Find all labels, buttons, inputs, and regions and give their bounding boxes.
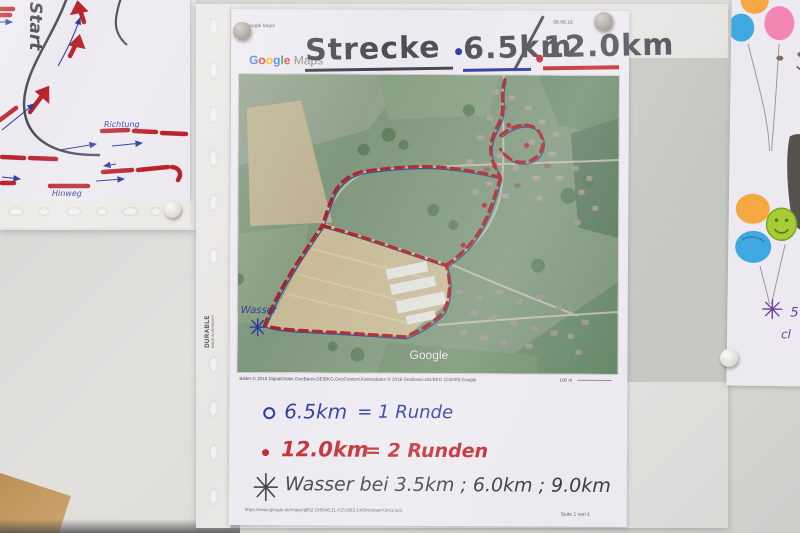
print-header-right: 06.06.16 (553, 20, 572, 26)
footer-url: https://www.google.de/maps/@52.198048,11… (245, 507, 403, 513)
hinweg-label: Hinweg (52, 189, 82, 198)
blue-balloon-top (728, 13, 754, 41)
push-pin-top-left (233, 22, 251, 40)
notice-board-photo: Start (0, 0, 800, 533)
map-attribution: Bilder © 2016 DigitalGlobe,GeoBasis-DE/B… (239, 376, 476, 382)
note1-bullet (263, 407, 275, 419)
left-sleeve-hole-strip (0, 200, 190, 228)
purple-star-icon (762, 299, 782, 319)
printed-route-page: Google Maps 06.06.16 Google Maps Strecke… (229, 9, 630, 527)
pink-balloon-top (764, 6, 794, 40)
left-sketch-paper: Start (0, 0, 190, 200)
title-dist-long: 12.0km (543, 27, 675, 65)
push-pin-top-right (594, 12, 613, 31)
richtung-label: Richtung (104, 120, 140, 129)
note2-dist: 12.0km (281, 437, 369, 461)
logo-letter: G (249, 53, 258, 67)
map-scale-label: 100 m (559, 378, 572, 383)
wasser-label: Wasser (241, 305, 278, 316)
note3-text: Wasser bei 3.5km ; 6.0km ; 9.0km (285, 473, 611, 497)
map-watermark: Google (410, 348, 449, 362)
map-image: Wasser Google (237, 74, 619, 374)
orange-balloon-mid (736, 194, 770, 224)
note1-eq: = 1 Runde (357, 402, 453, 424)
note3-star-icon (253, 471, 279, 501)
balloon-drawing-paper: 5 cl (726, 0, 800, 387)
route-title: Strecke (305, 30, 441, 68)
blue-balloon-mid (735, 231, 771, 263)
push-pin-right (720, 349, 738, 367)
sleeve-brand-label: DURABLE MADE IN GERMANY (205, 315, 215, 348)
left-sleeve: Start (0, 0, 196, 230)
center-sleeve-hole-strip: DURABLE MADE IN GERMANY (196, 4, 231, 528)
green-balloon-smiley (766, 208, 796, 240)
title-strecke: Strecke (305, 30, 441, 68)
satellite-map: Wasser Google (237, 74, 619, 374)
sleeve-made-in: MADE IN GERMANY (211, 315, 215, 348)
orange-balloon-top (740, 0, 768, 14)
route-sketch-drawing: Start (0, 0, 190, 200)
underline-120 (543, 65, 619, 70)
center-sleeve: DURABLE MADE IN GERMANY Google Maps 06.0… (196, 4, 728, 528)
map-scale-bar (577, 380, 611, 381)
underline-65 (463, 68, 531, 72)
logo-letter: o (266, 53, 273, 67)
face-dot (776, 56, 783, 61)
note2-eq: = 2 Runden (365, 440, 488, 463)
blue-dot (455, 48, 462, 55)
footer-page-number: Seite 1 von 1 (561, 512, 590, 518)
note1-dist: 6.5km (284, 399, 347, 423)
start-label: Start (25, 2, 45, 51)
balloon-drawing: 5 cl (726, 0, 800, 387)
note2-bullet (262, 449, 269, 456)
push-pin-left (164, 201, 181, 218)
partial-text-2: cl (781, 327, 792, 341)
wasser-star-icon (250, 318, 266, 336)
logo-letter: o (258, 53, 265, 67)
partial-text-1: 5 (790, 305, 798, 320)
red-dot (536, 55, 543, 63)
